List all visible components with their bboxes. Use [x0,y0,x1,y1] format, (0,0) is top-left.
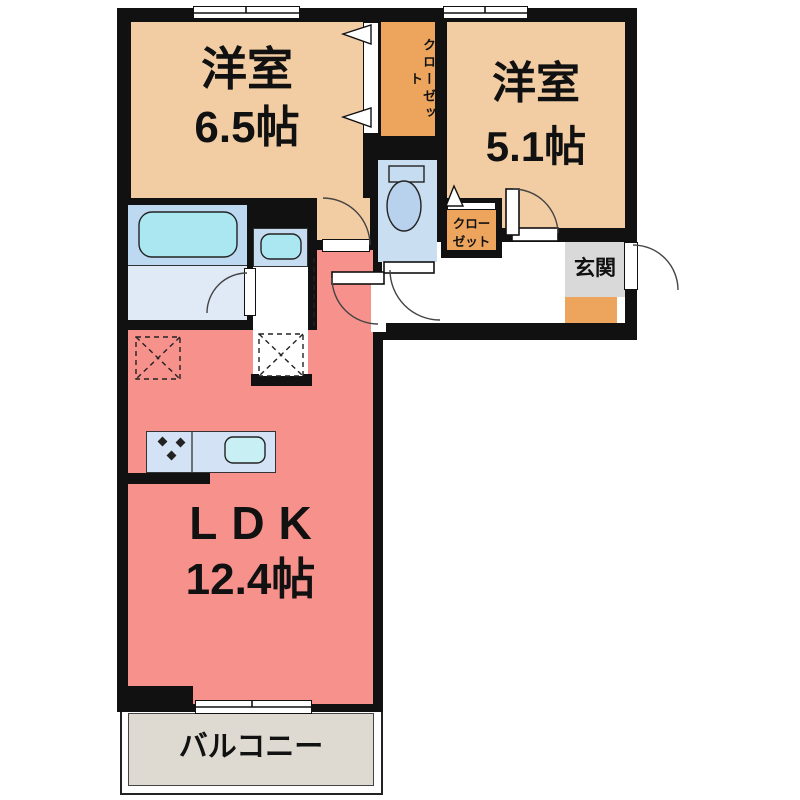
kitchen-counter [146,431,276,473]
bedroom1-window [193,6,300,19]
closet-main-folding-doors [363,22,379,134]
closet-small-label: クロー ゼット [447,215,496,251]
washroom-door-opening [244,268,256,316]
balcony-sliding-window [195,700,312,714]
closet-small-door [447,202,496,210]
floor-plan: 洋室 6.5帖 洋室 5.1帖 LDK 12.4帖 バルコニー 玄関 クローゼッ… [0,0,800,800]
closet-main-label: クローゼット [381,30,435,130]
bedroom1-door-opening [322,239,370,252]
bedroom2-label: 洋室 [447,62,625,106]
closet-small-line1: クロー [453,217,491,231]
ldk-size: 12.4帖 [128,558,373,602]
ldk-door-opening [371,276,386,332]
washroom-floor [128,265,247,320]
closet-small-line2: ゼット [453,235,491,249]
entrance-door-arc [633,245,678,290]
washbasin-unit [253,228,308,267]
ldk-label: LDK [128,500,373,546]
bedroom2-window [443,6,528,19]
entrance-door-opening [624,242,638,290]
entrance-label: 玄関 [565,258,625,279]
shoe-cabinet [565,297,617,323]
laundry-alcove-wall [251,374,312,386]
bedroom1-label: 洋室 [131,46,363,92]
laundry-alcove [253,267,308,377]
bedroom1-size: 6.5帖 [131,106,363,150]
toilet-room [378,160,437,262]
bedroom2-size: 5.1帖 [447,126,625,168]
ldk-floor-arm [317,250,373,334]
kitchen-wall-stub [128,473,210,484]
ldk-bottom-wall-jog [117,686,193,712]
bathroom-floor [128,205,247,265]
bedroom1-floor-arm [317,198,370,240]
balcony-label: バルコニー [128,733,374,762]
